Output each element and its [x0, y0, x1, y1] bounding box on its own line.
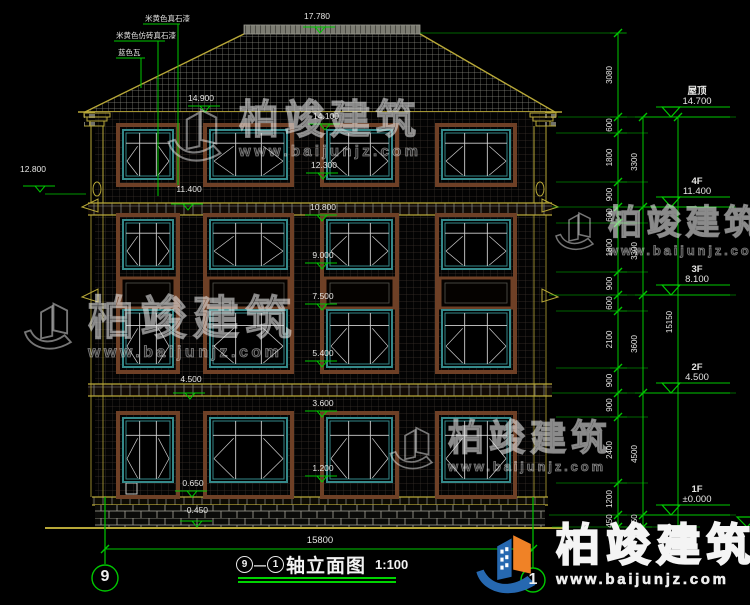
cad-text: 17.780 [304, 11, 330, 21]
cad-text: 4500 [630, 445, 639, 463]
title-underline [238, 581, 396, 583]
cad-text: 900 [605, 398, 614, 412]
window [210, 418, 287, 482]
window [327, 220, 392, 269]
cad-text: 2400 [605, 441, 614, 459]
cad-text: 14.900 [188, 93, 214, 103]
cad-text: 3300 [630, 153, 639, 171]
level-markers-right: 屋顶14.7004F11.4003F8.1002F4.5001F±0.000 [643, 86, 750, 527]
cad-text: 3300 [630, 242, 639, 260]
cad-text: 1800 [605, 148, 614, 166]
cad-text: 1800 [605, 238, 614, 256]
cad-text: 7.500 [312, 291, 334, 301]
drawing-title: 9 — 1 轴立面图 1:100 [236, 551, 416, 585]
title-axis-start-bubble: 9 [236, 556, 253, 573]
cad-text: 900 [605, 373, 614, 387]
cad-text: 1200 [605, 490, 614, 508]
cad-text: 600 [605, 118, 614, 132]
cad-text: 3600 [630, 335, 639, 353]
cad-text: 4.500 [180, 374, 202, 384]
cad-text: 11.400 [683, 186, 711, 197]
cad-text: 米黄色仿砖真石漆 [116, 30, 176, 40]
cad-text: 450 [605, 514, 614, 528]
dim-chain-mid: 3300330036004500450 [630, 113, 652, 531]
cad-text: 3.600 [312, 398, 334, 408]
cad-text: 米黄色真石漆 [145, 13, 190, 23]
cad-text: 3080 [605, 66, 614, 84]
cad-text: 5.400 [312, 348, 334, 358]
window [327, 130, 392, 179]
cad-text: 900 [605, 187, 614, 201]
cad-text: 8.100 [685, 274, 709, 285]
window [123, 418, 173, 482]
window [442, 130, 510, 179]
cad-text: 0.650 [182, 478, 204, 488]
title-axis-end-bubble: 1 [267, 556, 284, 573]
cad-text: 15150 [665, 310, 674, 333]
title-underline [238, 577, 396, 579]
window [123, 220, 173, 269]
cad-text: 10.800 [310, 202, 336, 212]
window [123, 310, 173, 367]
axis-bubble-1-label: 1 [524, 571, 542, 589]
cad-text: ±0.000 [683, 494, 712, 505]
window [210, 310, 287, 367]
window [327, 310, 392, 367]
title-text: 轴立面图 [286, 551, 366, 578]
dim-chain-inner: 3080600180090060018009006002100900900240… [605, 29, 627, 531]
cad-text: 11.400 [176, 184, 202, 194]
dim-chain-outer: 15150 [665, 113, 687, 531]
title-axis-dash: — [254, 558, 266, 572]
cad-text: 12.800 [20, 164, 46, 174]
cad-text: 900 [605, 276, 614, 290]
cad-text: -0.450 [184, 505, 208, 515]
cad-text: 9.000 [312, 250, 334, 260]
window [123, 130, 173, 179]
cad-text: 12.300 [311, 160, 337, 170]
cad-text: 450 [630, 514, 639, 528]
window [442, 418, 510, 482]
window [442, 310, 510, 367]
cad-text: 600 [605, 296, 614, 310]
elevation-drawing: 3080600180090060018009006002100900900240… [0, 0, 750, 605]
cad-elevation-viewport: 3080600180090060018009006002100900900240… [0, 0, 750, 605]
window [442, 220, 510, 269]
cad-text: 14.700 [682, 96, 711, 107]
cad-text: 600 [605, 208, 614, 222]
cad-text: 2100 [605, 330, 614, 348]
window [210, 220, 287, 269]
cad-text: 1.200 [312, 463, 334, 473]
window [327, 418, 392, 482]
title-scale: 1:100 [375, 557, 408, 572]
cad-text: 14.100 [313, 111, 339, 121]
overall-width-dimension: 15800 [296, 535, 344, 546]
cad-text: 蓝色瓦 [118, 47, 141, 57]
axis-bubble-9-label: 9 [96, 568, 114, 586]
cad-text: 4.500 [685, 372, 709, 383]
window [210, 130, 287, 179]
